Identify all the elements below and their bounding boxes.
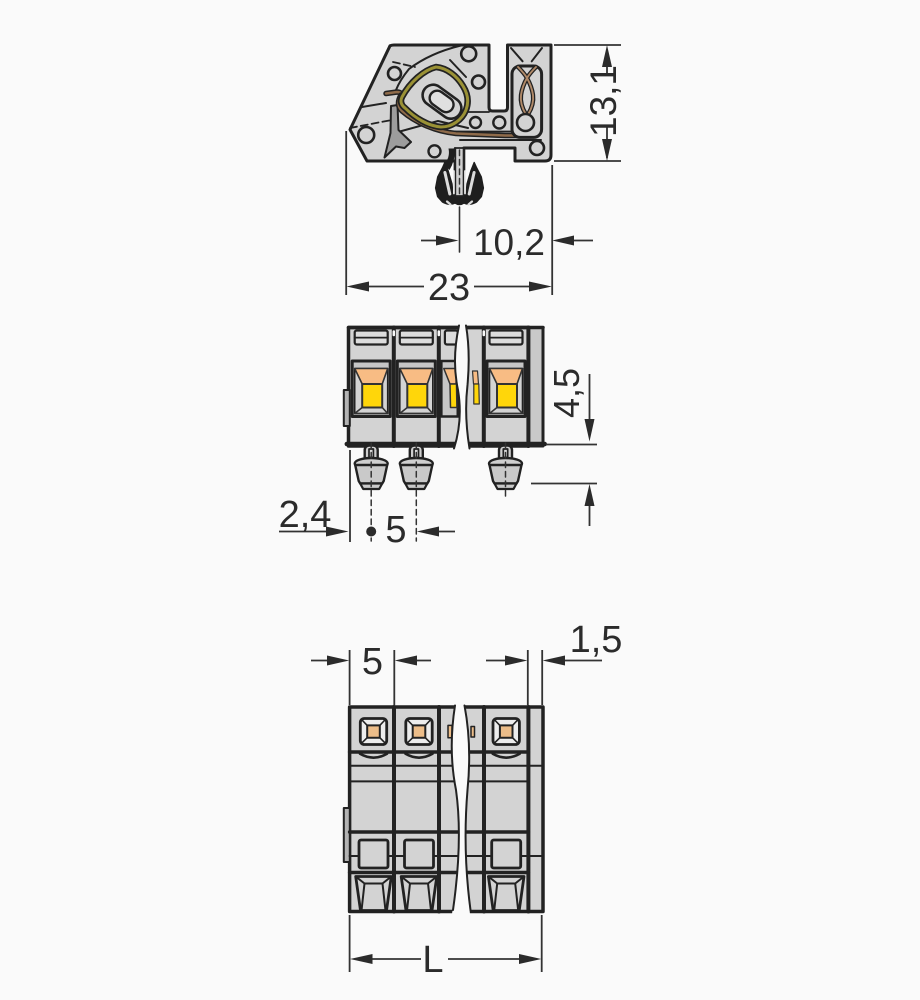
svg-text:23: 23 [428,267,470,309]
svg-text:5: 5 [362,641,383,683]
svg-text:13,1: 13,1 [583,65,624,137]
svg-text:L: L [422,939,443,981]
svg-text:1,5: 1,5 [570,619,623,661]
svg-text:5: 5 [385,509,406,551]
svg-text:10,2: 10,2 [473,222,545,263]
svg-text:4,5: 4,5 [546,368,587,418]
svg-text:2,4: 2,4 [279,494,332,536]
